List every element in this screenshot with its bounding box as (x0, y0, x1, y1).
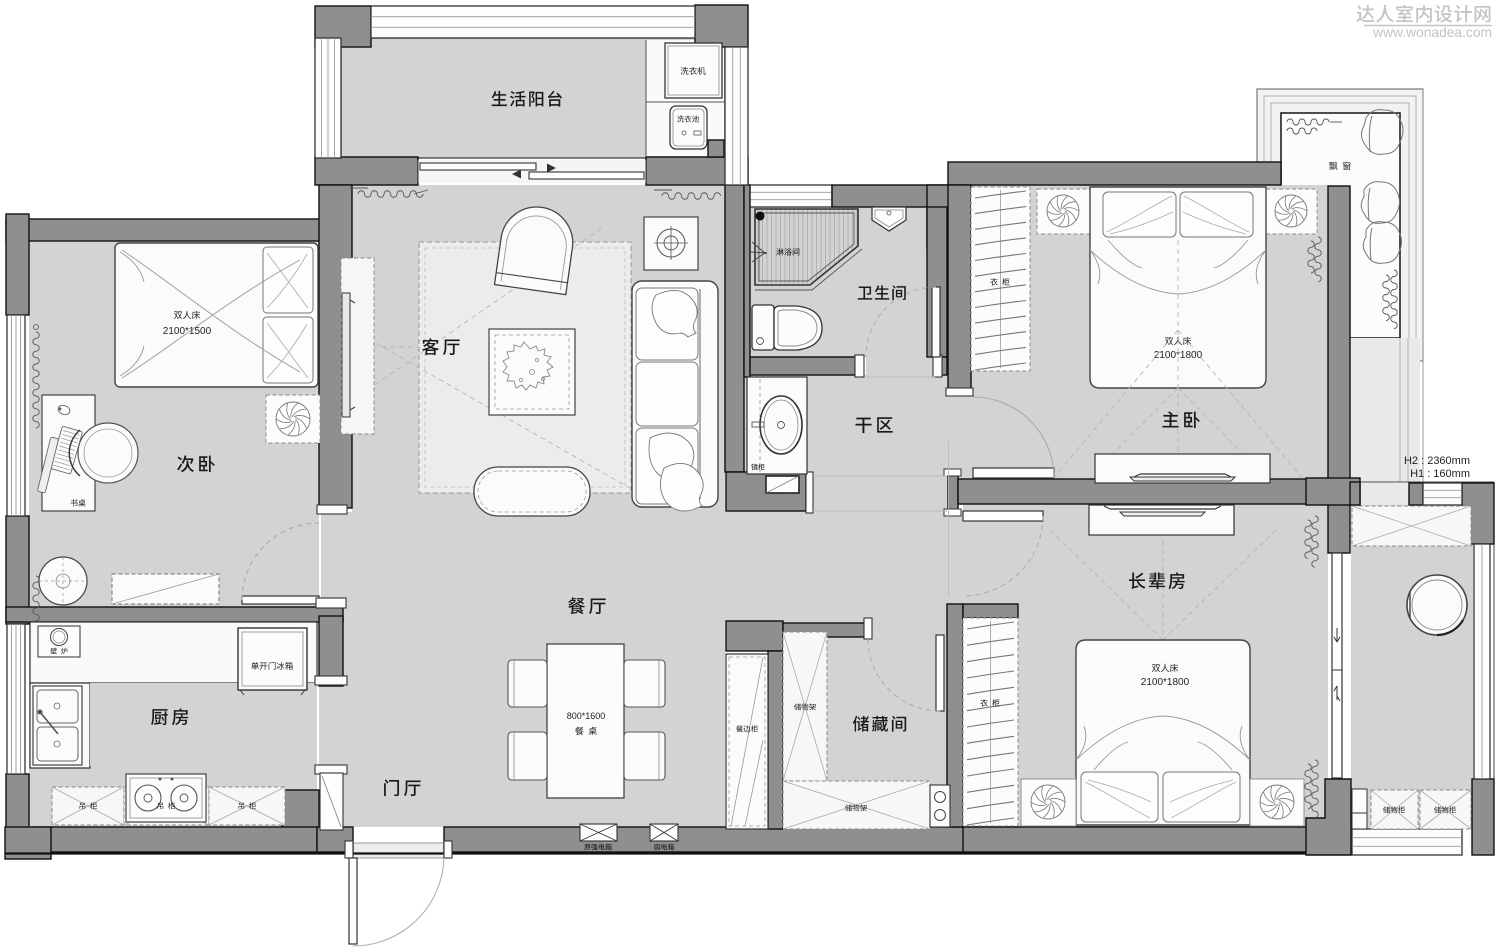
svg-text:www.wonadea.com: www.wonadea.com (1372, 25, 1492, 40)
svg-text:2100*1800: 2100*1800 (1141, 677, 1190, 688)
svg-text:800*1600: 800*1600 (567, 711, 606, 721)
svg-text:H1 : 160mm: H1 : 160mm (1410, 468, 1470, 480)
svg-text:2100*1500: 2100*1500 (163, 326, 212, 337)
svg-text:H2 : 2360mm: H2 : 2360mm (1404, 455, 1470, 467)
